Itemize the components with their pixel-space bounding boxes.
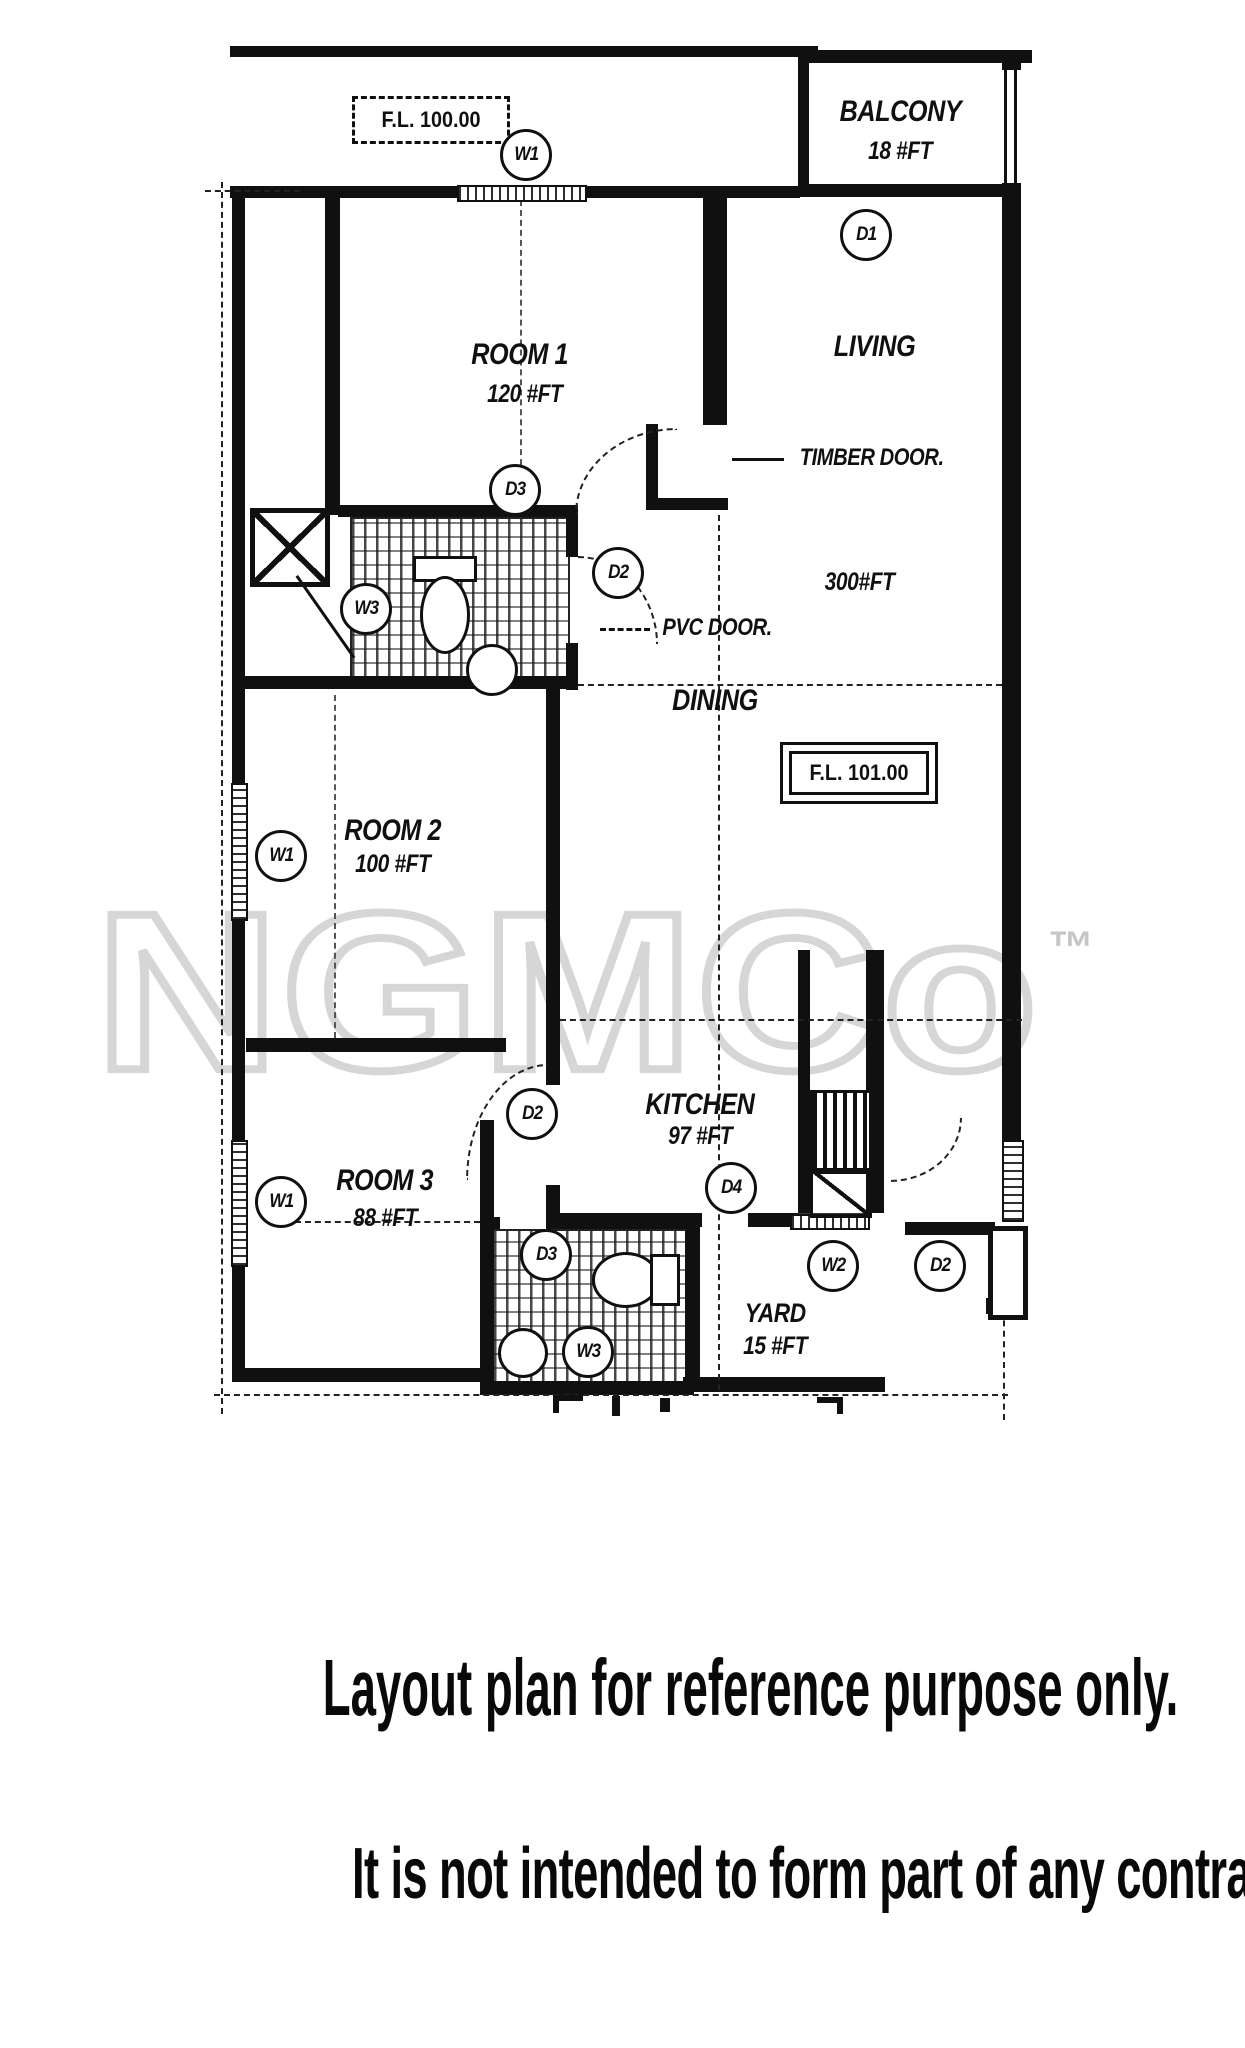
- marker-door-d3-room1: D3: [489, 464, 541, 516]
- timber-door-leader: [732, 458, 784, 461]
- wall-right-outer: [1002, 50, 1021, 1218]
- room-area-room2: 100 #FT: [318, 850, 468, 879]
- marker-window-w2-yard: W2: [807, 1240, 859, 1292]
- grid-line-vertical: [718, 515, 720, 1390]
- toilet1-bowl: [420, 576, 470, 654]
- wall-toilet2-top-left: [480, 1217, 500, 1229]
- wall-corridor-bottom: [905, 1222, 995, 1235]
- marker-window-w3-toilet2: W3: [562, 1326, 614, 1378]
- marker-window-w1-room3: W1: [255, 1176, 307, 1228]
- wall-room1-top-left: [230, 186, 457, 198]
- window-balcony-glass-line1: [1004, 70, 1007, 183]
- marker-door-d2-toilet1: D2: [592, 547, 644, 599]
- room-label-dining: DINING: [630, 684, 800, 718]
- boundary-line-bottom: [214, 1394, 1008, 1396]
- toilet2-basin: [498, 1328, 548, 1378]
- wall-toilet2-top-right: [546, 1217, 692, 1229]
- room-area-yard: 15 #FT: [710, 1332, 840, 1361]
- room-area-living-dining: 300#FT: [800, 568, 920, 597]
- kitchen-open-boundary-line: [560, 1019, 1022, 1021]
- window-balcony-glass-line2: [1014, 70, 1017, 183]
- room-label-living: LIVING: [800, 330, 950, 364]
- window-room1-top: [457, 185, 587, 202]
- floor-level-box-101: F.L. 101.00: [780, 742, 938, 804]
- wall-stair-left: [798, 950, 810, 1213]
- stair-landing-box: [810, 1168, 872, 1218]
- pvc-door-leader: [600, 628, 650, 631]
- floor-plan-page: NGMCo ™: [0, 0, 1245, 2048]
- shaft-x-box: [250, 508, 330, 587]
- window-right-lower: [1002, 1140, 1024, 1222]
- room-label-kitchen: KITCHEN: [615, 1088, 785, 1122]
- room-label-room1: ROOM 1: [440, 338, 600, 372]
- entry-door-leaf: [988, 1226, 1028, 1320]
- floor-level-100-label: F.L. 100.00: [381, 107, 480, 133]
- toilet2-cistern: [650, 1254, 680, 1306]
- marker-window-w1-room2: W1: [255, 830, 307, 882]
- floor-level-box-100: F.L. 100.00: [352, 96, 510, 144]
- marker-door-d4-yard: D4: [705, 1162, 757, 1214]
- marker-window-w1-top: W1: [500, 129, 552, 181]
- entrance-step-mark: [612, 1396, 620, 1416]
- marker-door-d2-kitchen: D2: [506, 1088, 558, 1140]
- room-area-room3: 88 #FT: [310, 1204, 460, 1233]
- room-label-balcony: BALCONY: [798, 95, 1002, 129]
- wall-room1-top-right: [581, 186, 800, 198]
- pvc-door-label: PVC DOOR.: [652, 614, 782, 642]
- floor-level-101-label: F.L. 101.00: [809, 760, 908, 786]
- wall-room3-bottom: [232, 1368, 490, 1382]
- entrance-step-mark: [660, 1398, 670, 1412]
- caption-line2: It is not intended to form part of any c…: [0, 1838, 1245, 1910]
- room-label-room3: ROOM 3: [310, 1164, 460, 1198]
- wall-room1-left: [325, 197, 340, 515]
- boundary-line-left: [221, 182, 223, 1414]
- boundary-line-top-left: [205, 190, 300, 192]
- room-label-room2: ROOM 2: [318, 814, 468, 848]
- room-area-balcony: 18 #FT: [798, 137, 1002, 166]
- door-arc-corridor: [890, 1118, 962, 1182]
- trademark-symbol: ™: [1048, 920, 1094, 974]
- room-area-room1: 120 #FT: [445, 380, 605, 409]
- boundary-line-bottom-right: [1003, 1310, 1005, 1420]
- entrance-step-mark: [553, 1395, 559, 1413]
- wall-toilet1-bottom: [245, 676, 578, 689]
- room-area-kitchen: 97 #FT: [615, 1122, 785, 1151]
- wall-room2-right: [546, 689, 560, 1085]
- timber-door-label: TIMBER DOOR.: [786, 444, 957, 472]
- marker-door-d1-balcony: D1: [840, 209, 892, 261]
- wall-balcony-top: [798, 50, 1032, 63]
- wall-toilet1-top: [338, 505, 578, 517]
- door-arc-timber: [575, 428, 677, 514]
- marker-window-w3-toilet1: W3: [340, 583, 392, 635]
- window-room3-left: [231, 1140, 248, 1267]
- entrance-step-mark: [837, 1397, 843, 1414]
- toilet1-basin: [466, 644, 518, 696]
- wall-toilet2-bottom: [480, 1381, 694, 1395]
- wall-room2-bottom: [246, 1038, 506, 1052]
- wall-yard-bottom: [683, 1377, 885, 1392]
- marker-door-d2-entry: D2: [914, 1240, 966, 1292]
- wall-top-main: [230, 46, 818, 57]
- caption-line1: Layout plan for reference purpose only.: [0, 1648, 1245, 1728]
- stair-treads: [810, 1090, 872, 1174]
- room-label-yard: YARD: [710, 1298, 840, 1329]
- wall-yard-left: [685, 1213, 700, 1385]
- wall-room1-living: [703, 197, 727, 425]
- wall-balcony-bottom: [798, 184, 1002, 197]
- marker-door-d3-toilet2: D3: [520, 1229, 572, 1281]
- window-room2-left: [231, 783, 248, 921]
